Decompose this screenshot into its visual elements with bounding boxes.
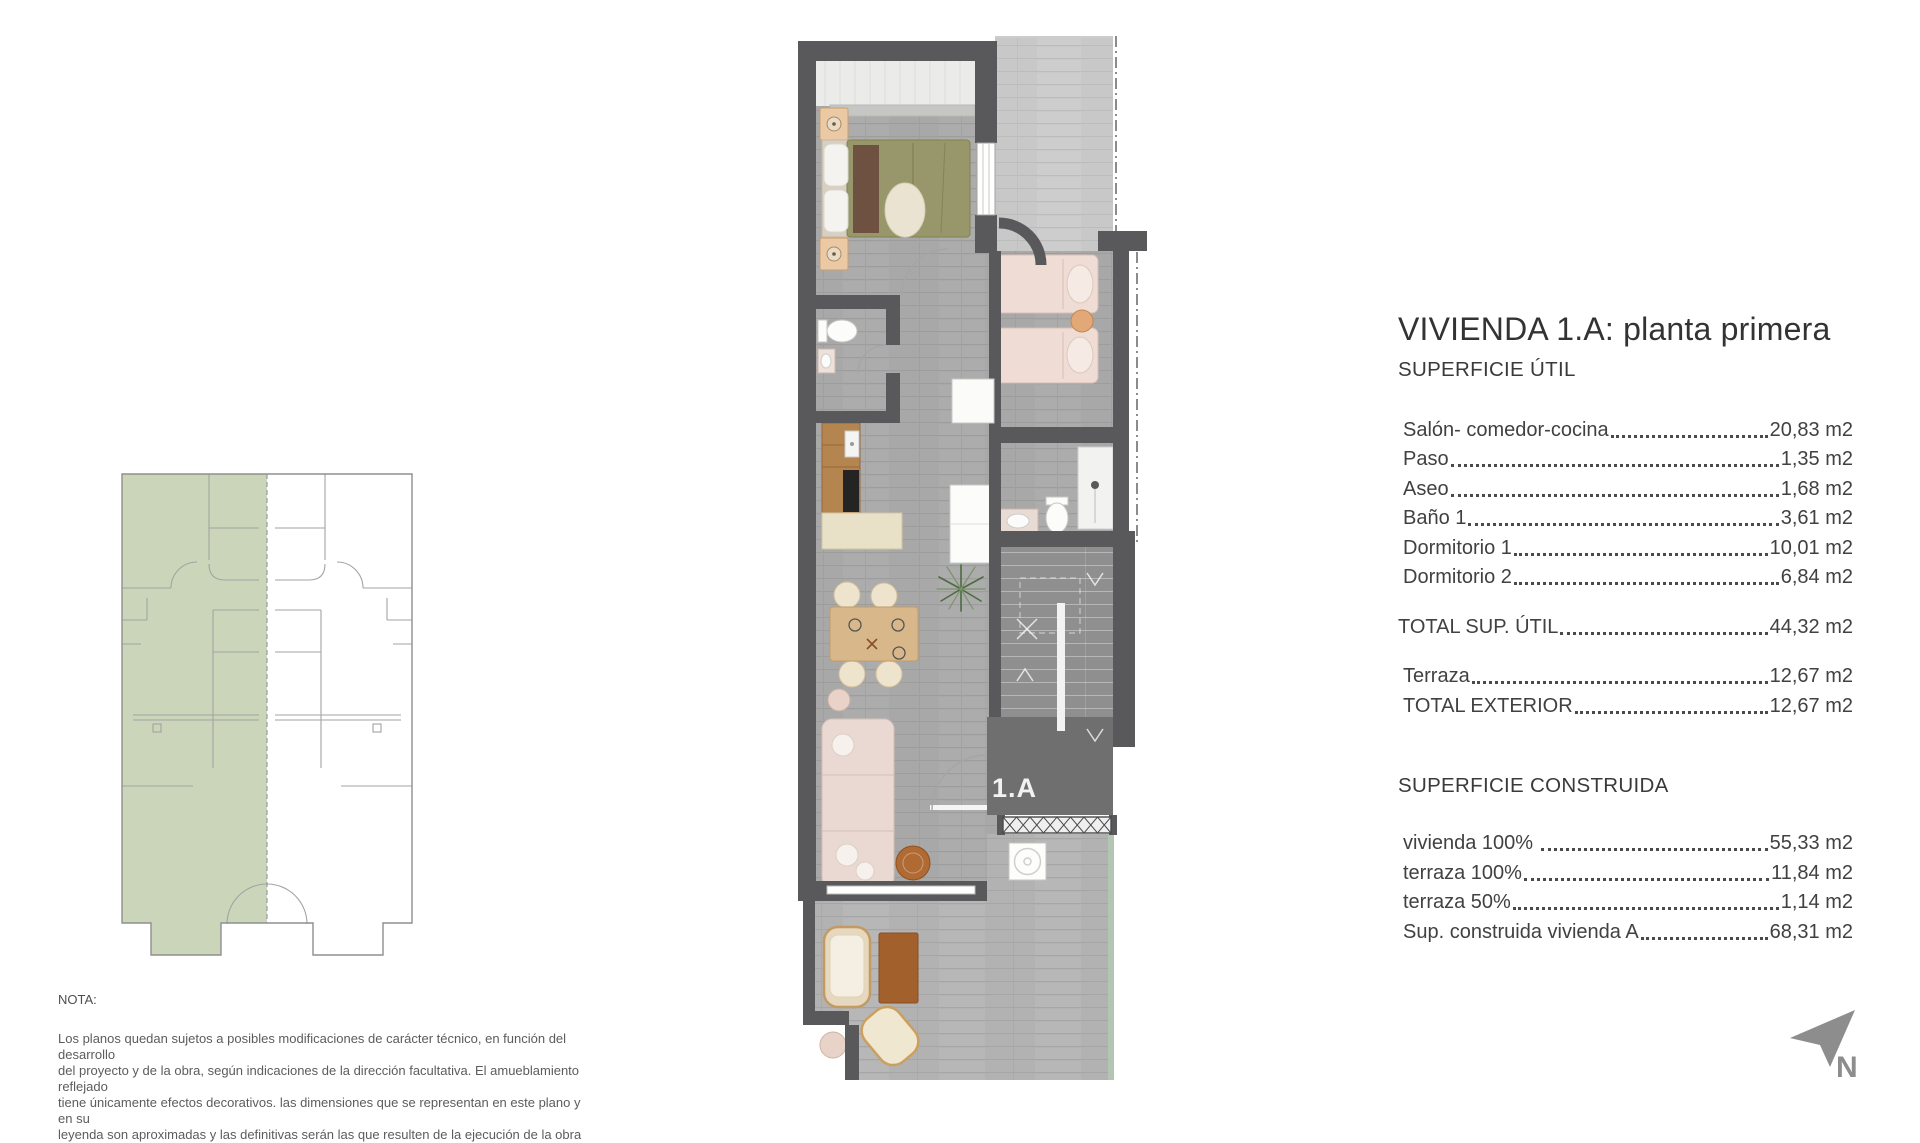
- row-label: Baño 1: [1403, 507, 1466, 530]
- row-value: 11,84 m2: [1771, 862, 1853, 885]
- dot-leader: [1611, 435, 1768, 438]
- kitchen-island: [822, 513, 902, 549]
- area-row: TOTAL EXTERIOR12,67 m2: [1398, 688, 1853, 718]
- plan-sheet: { "title": "VIVIENDA 1.A: planta primera…: [0, 0, 1920, 1080]
- row-value: 20,83 m2: [1770, 419, 1853, 442]
- terrace-railing: [1003, 817, 1111, 833]
- area-row: Aseo1,68 m2: [1398, 471, 1853, 501]
- nota-heading: NOTA:: [58, 992, 588, 1007]
- floor-plan: 1.A: [795, 33, 1147, 1080]
- washer: [1009, 843, 1046, 880]
- area-row: Dormitorio 26,84 m2: [1398, 560, 1853, 590]
- dot-leader: [1472, 681, 1768, 684]
- row-value: 3,61 m2: [1781, 507, 1853, 530]
- row-value: 6,84 m2: [1781, 566, 1853, 589]
- dot-leader: [1524, 878, 1769, 881]
- superficie-construida-rows: vivienda 100% 55,33 m2 terraza 100%11,84…: [1398, 826, 1853, 944]
- row-label: vivienda 100%: [1403, 832, 1539, 855]
- north-indicator: N: [1770, 1005, 1900, 1080]
- nota-line: del proyecto y de la obra, según indicac…: [58, 1063, 588, 1095]
- unit-label: 1.A: [992, 773, 1037, 803]
- toilet: [1046, 503, 1068, 533]
- row-label: Sup. construida vivienda A: [1403, 921, 1639, 944]
- sofa-pillow: [832, 734, 854, 756]
- coffee-table: [896, 846, 930, 880]
- pillow: [824, 144, 848, 186]
- row-label: Salón- comedor-cocina: [1403, 419, 1609, 442]
- row-label: terraza 50%: [1403, 891, 1511, 914]
- cooktop: [843, 470, 859, 512]
- window: [977, 143, 995, 215]
- dot-leader: [1560, 632, 1767, 635]
- area-row: Terraza12,67 m2: [1398, 659, 1853, 689]
- nota-line: leyenda son aproximadas y las definitiva…: [58, 1127, 588, 1143]
- row-value: 55,33 m2: [1770, 832, 1853, 855]
- area-row: Paso1,35 m2: [1398, 442, 1853, 472]
- row-label: Paso: [1403, 448, 1449, 471]
- terrace-green-edge: [1108, 834, 1114, 1080]
- sliding-door: [952, 379, 994, 423]
- terrace-table: [879, 933, 918, 1003]
- area-summary-panel: VIVIENDA 1.A: planta primera SUPERFICIE …: [1398, 310, 1853, 944]
- bed-blanket: [885, 183, 925, 237]
- area-row: Sup. construida vivienda A68,31 m2: [1398, 914, 1853, 944]
- total-util-row: TOTAL SUP. ÚTIL44,32 m2: [1398, 609, 1853, 639]
- superficie-util-rows: Salón- comedor-cocina20,83 m2 Paso1,35 m…: [1398, 412, 1853, 589]
- dot-leader: [1451, 464, 1779, 467]
- dot-leader: [1451, 494, 1779, 497]
- nota-line: Los planos quedan sujetos a posibles mod…: [58, 1031, 588, 1063]
- row-value: 1,68 m2: [1781, 478, 1853, 501]
- row-label: TOTAL SUP. ÚTIL: [1398, 616, 1558, 639]
- row-label: Dormitorio 1: [1403, 537, 1512, 560]
- north-label: N: [1836, 1051, 1858, 1080]
- row-label: TOTAL EXTERIOR: [1403, 695, 1573, 718]
- row-value: 1,35 m2: [1781, 448, 1853, 471]
- pillow: [824, 190, 848, 232]
- bedside-table: [1071, 310, 1093, 332]
- row-value: 12,67 m2: [1770, 665, 1853, 688]
- nota-text: Los planos quedan sujetos a posibles mod…: [58, 1031, 588, 1143]
- row-value: 44,32 m2: [1770, 616, 1853, 639]
- nota-line: tiene únicamente efectos decorativos. la…: [58, 1095, 588, 1127]
- dining-chair: [839, 661, 865, 687]
- dot-leader: [1468, 523, 1778, 526]
- key-plan: [113, 468, 421, 965]
- dot-leader: [1514, 553, 1768, 556]
- window: [827, 886, 975, 894]
- row-label: terraza 100%: [1403, 862, 1522, 885]
- area-row: vivienda 100% 55,33 m2: [1398, 826, 1853, 856]
- bedroom1-shelf: [830, 105, 975, 116]
- dot-leader: [1513, 907, 1779, 910]
- row-label: Terraza: [1403, 665, 1470, 688]
- nota-block: NOTA: Los planos quedan sujetos a posibl…: [58, 992, 588, 1143]
- area-row: Salón- comedor-cocina20,83 m2: [1398, 412, 1853, 442]
- row-value: 1,14 m2: [1781, 891, 1853, 914]
- superficie-util-heading: SUPERFICIE ÚTIL: [1398, 358, 1853, 382]
- entry-threshold: [930, 805, 987, 810]
- area-row: terraza 100%11,84 m2: [1398, 855, 1853, 885]
- dot-leader: [1575, 711, 1768, 714]
- toilet: [827, 320, 857, 342]
- sofa-pillow: [856, 862, 874, 880]
- row-label: Aseo: [1403, 478, 1449, 501]
- area-row: Baño 13,61 m2: [1398, 501, 1853, 531]
- superficie-construida-heading: SUPERFICIE CONSTRUIDA: [1398, 774, 1853, 798]
- area-row: terraza 50%1,14 m2: [1398, 885, 1853, 915]
- terrace-pouf: [820, 1032, 846, 1058]
- area-row: Dormitorio 110,01 m2: [1398, 530, 1853, 560]
- dot-leader: [1541, 848, 1768, 851]
- stool: [828, 689, 850, 711]
- exterior-rows: Terraza12,67 m2 TOTAL EXTERIOR12,67 m2: [1398, 659, 1853, 718]
- row-value: 68,31 m2: [1770, 921, 1853, 944]
- row-label: Dormitorio 2: [1403, 566, 1512, 589]
- dot-leader: [1514, 582, 1779, 585]
- page-title: VIVIENDA 1.A: planta primera: [1398, 310, 1853, 348]
- row-value: 10,01 m2: [1770, 537, 1853, 560]
- sofa-pillow: [836, 844, 858, 866]
- dining-chair: [876, 661, 902, 687]
- dining-chair: [871, 583, 897, 609]
- upper-terrace-floor: [995, 38, 1113, 251]
- dot-leader: [1641, 937, 1768, 940]
- dining-chair: [834, 582, 860, 608]
- row-value: 12,67 m2: [1770, 695, 1853, 718]
